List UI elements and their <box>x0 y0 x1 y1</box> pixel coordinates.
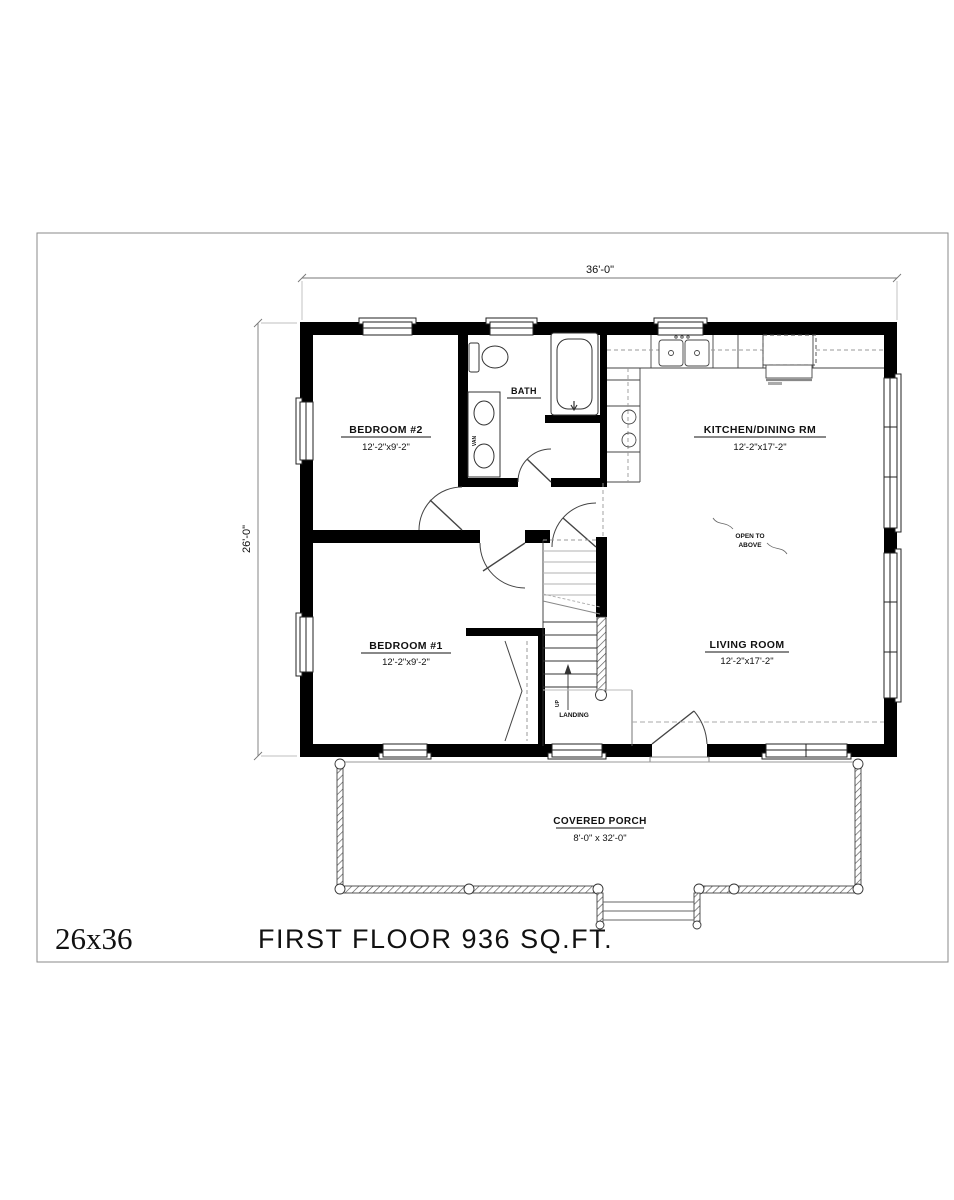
window-landing-bottom <box>548 744 606 759</box>
kitchen-label: KITCHEN/DINING RM <box>704 424 816 436</box>
kitchen-fixtures <box>603 335 884 537</box>
bath-fixtures <box>468 333 598 477</box>
vanity <box>468 392 500 477</box>
width-dimension: 36'-0" <box>586 264 614 276</box>
front-door-opening <box>652 744 707 757</box>
bath-door <box>518 449 551 482</box>
front-door <box>652 711 707 744</box>
vanity-label: VAN <box>472 436 478 447</box>
kitchen-size: 12'-2"x17'-2" <box>733 442 786 453</box>
newel-post <box>596 690 607 701</box>
depth-dimension: 26'-0" <box>241 525 253 553</box>
living-size: 12'-2"x17'-2" <box>720 656 773 667</box>
kitchen-sink <box>659 336 709 366</box>
landing-label: LANDING <box>559 712 589 719</box>
sheet-border <box>37 233 948 962</box>
stove <box>622 410 636 447</box>
bedroom2-door <box>419 487 462 530</box>
closet <box>505 641 527 741</box>
plan-title: FIRST FLOOR 936 SQ.FT. <box>258 924 613 955</box>
window-kitchen-right <box>884 374 901 532</box>
refrigerator <box>763 335 816 385</box>
open-to-above-label-2: ABOVE <box>738 542 762 549</box>
toilet <box>469 343 508 372</box>
up-arrow <box>565 664 572 674</box>
bath-label: BATH <box>511 386 537 396</box>
plan-model-number: 26x36 <box>55 921 133 957</box>
up-label: UP <box>555 699 561 707</box>
bedroom2-label: BEDROOM #2 <box>349 424 422 436</box>
window-bedroom1-bottom <box>379 744 431 759</box>
window-bedroom2-top <box>359 318 416 335</box>
window-bedroom2-left <box>296 398 313 464</box>
floor-plan-sheet: 36'-0" 26'-0" <box>0 0 954 1200</box>
porch <box>335 759 863 929</box>
stair-railing <box>597 617 606 691</box>
bifold-door <box>505 641 522 741</box>
bedroom2-size: 12'-2"x9'-2" <box>362 442 410 453</box>
living-label: LIVING ROOM <box>710 639 785 651</box>
bedroom1-label: BEDROOM #1 <box>369 640 442 652</box>
window-living-bottom <box>762 744 851 759</box>
window-kitchen-top <box>654 318 707 335</box>
open-to-above-label-1: OPEN TO <box>735 533 764 540</box>
bathtub <box>551 333 598 415</box>
window-bath-top <box>486 318 537 335</box>
floor-plan-drawing: 36'-0" 26'-0" <box>0 0 954 1200</box>
window-bedroom1-left <box>296 613 313 676</box>
window-living-right <box>884 549 901 702</box>
porch-size: 8'-0" x 32'-0" <box>573 833 626 844</box>
bedroom1-size: 12'-2"x9'-2" <box>382 657 430 668</box>
bedroom1-door <box>480 543 525 588</box>
porch-label: COVERED PORCH <box>553 816 647 827</box>
